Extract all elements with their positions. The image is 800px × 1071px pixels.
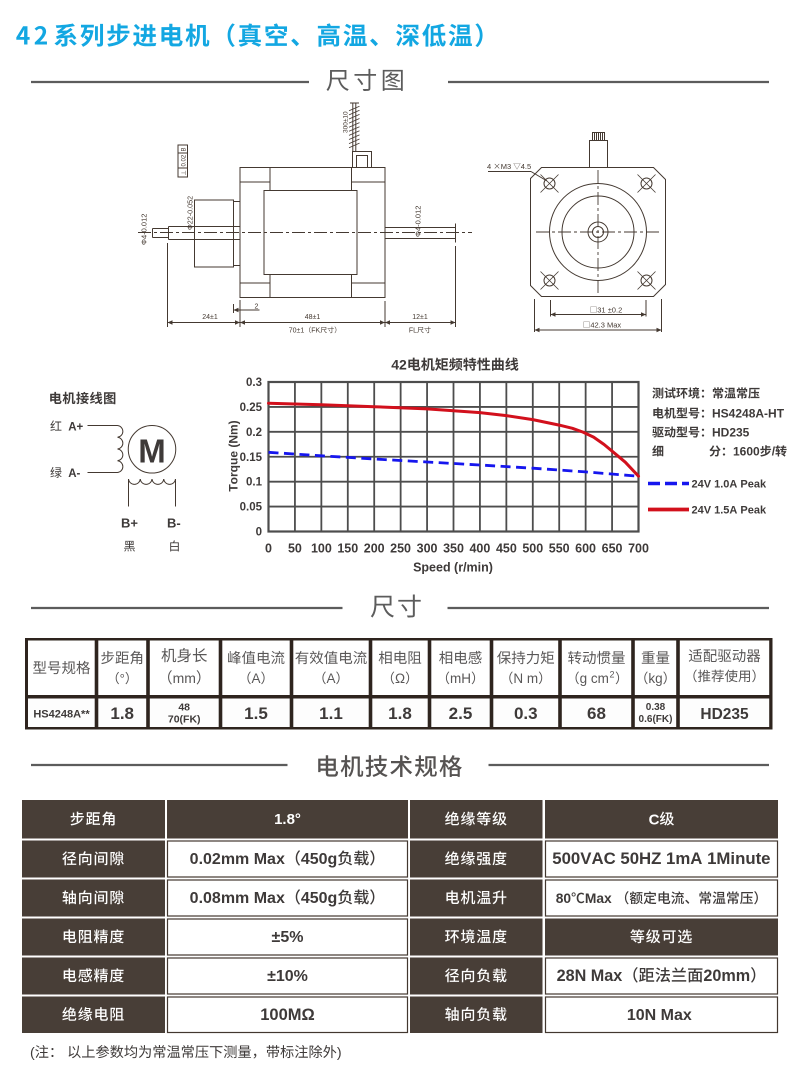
svg-text:HS4248A**: HS4248A** [33, 709, 90, 721]
svg-text:g cm: g cm [580, 671, 609, 686]
svg-text:200: 200 [364, 542, 385, 556]
svg-text:Speed (r/min): Speed (r/min) [413, 561, 493, 575]
svg-text:1.5: 1.5 [244, 704, 268, 723]
svg-text:mm: mm [173, 670, 196, 686]
svg-text:0.02mm Max: 0.02mm Max [190, 851, 285, 868]
svg-text:FL: FL [409, 328, 417, 335]
svg-text:42.3 Max: 42.3 Max [590, 321, 621, 330]
svg-text:A-: A- [68, 468, 80, 480]
svg-text:Φ22-0.052: Φ22-0.052 [186, 196, 195, 230]
svg-text:400: 400 [469, 542, 490, 556]
svg-text:0.1: 0.1 [246, 477, 263, 489]
svg-text:1.8: 1.8 [388, 704, 412, 723]
svg-text:4.5: 4.5 [521, 162, 531, 171]
svg-text:1.8: 1.8 [110, 704, 134, 723]
svg-text:1600: 1600 [733, 445, 760, 459]
svg-text:mH: mH [450, 671, 471, 686]
svg-text:Torque (Nm): Torque (Nm) [227, 420, 241, 491]
svg-text:°: ° [120, 671, 125, 686]
svg-text:250: 250 [390, 542, 411, 556]
svg-text:550: 550 [549, 542, 570, 556]
svg-text:0: 0 [265, 542, 272, 556]
svg-text:0.6(FK): 0.6(FK) [639, 714, 673, 725]
svg-text:0.08mm Max: 0.08mm Max [190, 890, 285, 907]
svg-text:0: 0 [256, 527, 262, 539]
svg-text:B+: B+ [121, 516, 138, 531]
svg-text:48: 48 [178, 702, 190, 714]
svg-text:42: 42 [391, 357, 407, 373]
svg-text:450g: 450g [301, 890, 337, 907]
svg-text:0.2: 0.2 [246, 427, 262, 439]
svg-text:0.38: 0.38 [646, 702, 666, 713]
svg-text:N m: N m [513, 671, 538, 686]
svg-text:0.25: 0.25 [240, 402, 263, 414]
svg-text:(: ( [30, 1045, 35, 1061]
svg-text:C: C [649, 811, 660, 828]
svg-text:24V 1.5A Peak: 24V 1.5A Peak [692, 505, 767, 517]
svg-text:0.3: 0.3 [246, 377, 262, 389]
svg-text:0.02: 0.02 [181, 154, 187, 166]
svg-text:2: 2 [610, 670, 615, 680]
svg-text:600: 600 [575, 542, 596, 556]
svg-text:A: A [252, 671, 261, 686]
svg-text:68: 68 [587, 704, 606, 723]
svg-text:70±1: 70±1 [289, 328, 305, 335]
svg-text:20mm: 20mm [703, 967, 750, 985]
svg-text:100: 100 [311, 542, 332, 556]
svg-text:700: 700 [628, 542, 649, 556]
svg-text:FK: FK [311, 328, 320, 335]
svg-text:500VAC 50HZ 1mA 1Minute: 500VAC 50HZ 1mA 1Minute [552, 849, 770, 868]
svg-text:450: 450 [496, 542, 517, 556]
svg-text:⊥: ⊥ [181, 170, 188, 175]
svg-text:80: 80 [556, 891, 572, 906]
svg-text:B: B [181, 147, 187, 151]
svg-text:B-: B- [167, 516, 181, 531]
svg-text:50: 50 [288, 542, 302, 556]
svg-text:24±1: 24±1 [202, 314, 218, 321]
svg-text:0.3: 0.3 [514, 704, 538, 723]
svg-text:Max: Max [585, 891, 612, 906]
svg-text:150: 150 [337, 542, 358, 556]
svg-text:): ) [337, 1045, 342, 1061]
svg-text:HD235: HD235 [712, 426, 750, 440]
svg-text:kg: kg [648, 671, 662, 686]
svg-text:A: A [327, 671, 336, 686]
svg-text:0.05: 0.05 [240, 502, 263, 514]
svg-text:M: M [138, 432, 166, 469]
svg-text:1.8°: 1.8° [274, 811, 301, 828]
svg-text:300±10: 300±10 [343, 111, 350, 133]
svg-text:HS4248A-HT: HS4248A-HT [712, 407, 785, 421]
svg-text:31 ±0.2: 31 ±0.2 [597, 306, 622, 315]
svg-text:±10%: ±10% [267, 968, 308, 985]
svg-text:500: 500 [522, 542, 543, 556]
svg-text:350: 350 [443, 542, 464, 556]
svg-text:28N Max: 28N Max [557, 967, 623, 985]
svg-text:0.15: 0.15 [240, 452, 263, 464]
svg-text:Ω: Ω [395, 671, 405, 686]
svg-text:M3: M3 [501, 162, 511, 171]
svg-text:650: 650 [602, 542, 623, 556]
svg-text:A+: A+ [68, 422, 83, 434]
svg-text:70(FK): 70(FK) [168, 714, 201, 726]
svg-text:Φ4-0.012: Φ4-0.012 [140, 214, 149, 245]
svg-text:HD235: HD235 [700, 706, 749, 723]
svg-text:24V 1.0A Peak: 24V 1.0A Peak [692, 479, 767, 491]
svg-text:1.1: 1.1 [319, 704, 343, 723]
svg-text:4: 4 [487, 162, 491, 171]
svg-text:300: 300 [417, 542, 438, 556]
svg-text:2.5: 2.5 [449, 704, 473, 723]
svg-text:450g: 450g [301, 851, 337, 868]
svg-text:48±1: 48±1 [305, 314, 321, 321]
svg-text:100MΩ: 100MΩ [260, 1006, 315, 1024]
svg-text:12±1: 12±1 [412, 314, 428, 321]
svg-text:10N Max: 10N Max [627, 1007, 692, 1024]
svg-text:2: 2 [255, 304, 259, 311]
svg-text:±5%: ±5% [272, 929, 304, 946]
svg-text:Φ4-0.012: Φ4-0.012 [414, 206, 423, 237]
